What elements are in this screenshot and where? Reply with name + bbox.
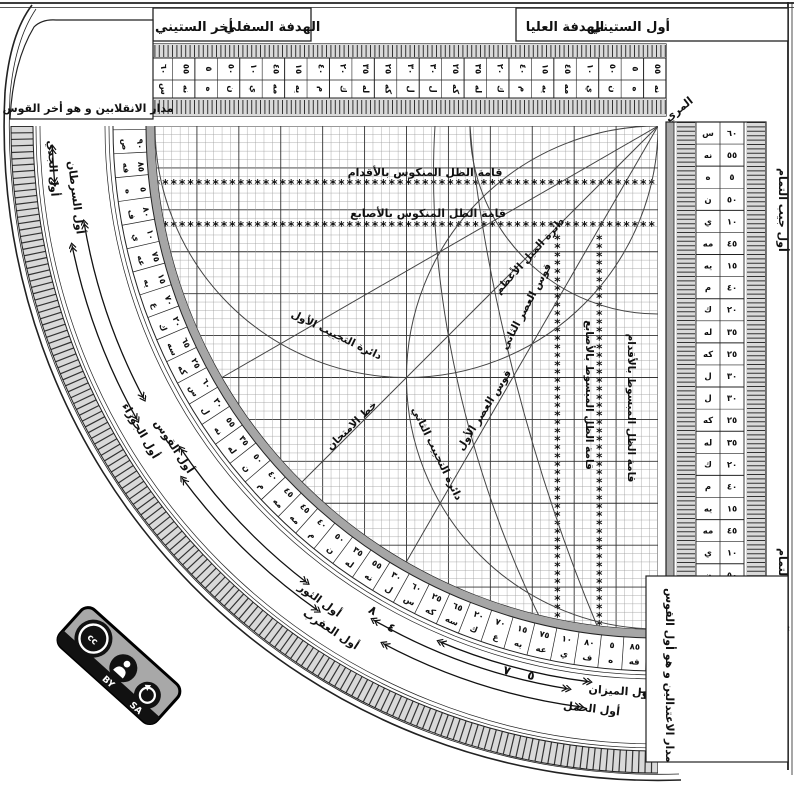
star-mark: * bbox=[573, 219, 580, 233]
cosine-cell-value: ٣٥ bbox=[727, 438, 737, 448]
degree-cell-value: ٣٥ bbox=[351, 545, 365, 559]
cosine-cell-letter: ه bbox=[705, 173, 710, 183]
degree-cell-value: ٢٥ bbox=[188, 357, 202, 371]
sixty-cell-value: ١٠ bbox=[584, 64, 594, 74]
star-mark: * bbox=[607, 219, 614, 233]
sixty-cell-letter: نه bbox=[181, 85, 191, 93]
star-mark: * bbox=[347, 177, 354, 191]
sixty-cell-letter: له bbox=[472, 85, 482, 93]
star-mark: * bbox=[464, 177, 471, 191]
degree-cell-value: ٥٥ bbox=[370, 558, 384, 572]
star-mark: * bbox=[623, 219, 630, 233]
cosine-cell-value: ١٥ bbox=[727, 505, 737, 515]
cosine-cell-value: ٥٥ bbox=[727, 151, 737, 161]
degree-cell-value: ٤٥ bbox=[281, 486, 295, 500]
degree-cell-value: ٧٥ bbox=[538, 629, 550, 641]
sixty-cell-letter: ي bbox=[248, 85, 258, 93]
degree-cell-letter: ي bbox=[559, 649, 569, 660]
cosine-cell-value: ٤٥ bbox=[727, 527, 737, 537]
star-mark: * bbox=[322, 177, 329, 191]
sixty-cell-value: ٥٠ bbox=[607, 64, 617, 74]
zodiac-label: أول الحمل bbox=[563, 698, 621, 718]
degree-cell-letter: ل bbox=[383, 584, 394, 596]
degree-cell-value: ٧٥ bbox=[149, 251, 161, 264]
cosine-cell-letter: ك bbox=[704, 306, 712, 316]
cosine-cell-letter: له bbox=[704, 438, 712, 448]
cosine-cell-letter: س bbox=[702, 129, 714, 139]
degree-cell-letter: ك bbox=[468, 624, 479, 636]
degree-cell-letter: ن bbox=[240, 463, 252, 475]
right-cosine-scale: س٦٠نه٥٥ه٥ن٥٠ي١٠مه٤٥يه١٥م٤٠ك٢٠له٣٥كه٢٥ل٣٠… bbox=[666, 122, 790, 630]
star-mark: * bbox=[288, 177, 295, 191]
sixty-cell-value: ٦٠ bbox=[158, 64, 168, 74]
muri-label: المري bbox=[662, 94, 695, 124]
sixty-cell-value: ٥٥ bbox=[181, 64, 191, 74]
cosine-cell-value: ٦٠ bbox=[727, 129, 737, 139]
cosine-cell-letter: كه bbox=[703, 416, 713, 426]
degree-cell-value: ٨٠ bbox=[583, 638, 595, 649]
degree-cell-letter: ص bbox=[119, 139, 129, 151]
degree-cell-value: ٨٥ bbox=[629, 642, 640, 652]
degree-cell-value: ٦٠ bbox=[199, 377, 213, 391]
star-mark: * bbox=[389, 219, 396, 233]
star-mark: * bbox=[590, 177, 597, 191]
sixty-cell-value: ٣٥ bbox=[360, 64, 370, 74]
star-mark: * bbox=[523, 177, 530, 191]
degree-cell-value: ٥ bbox=[609, 641, 615, 651]
label-digits-reversed: قامة الظل المنكوس بالأصابع bbox=[350, 206, 506, 220]
star-mark: * bbox=[280, 219, 287, 233]
quadrant-svg: ٩٠ص٨٥فه٥ه٨٠ف١٠ي٧٥عه١٥يه٧٠ع٢٠ك٦٥سه٢٥كه٦٠س… bbox=[0, 0, 794, 794]
degree-cell-value: ٧٠ bbox=[494, 617, 507, 630]
cosine-cell-letter: يه bbox=[704, 262, 712, 272]
star-mark: * bbox=[422, 219, 429, 233]
degree-cell-letter: ف bbox=[125, 209, 136, 220]
degree-cell-letter: عه bbox=[535, 644, 548, 656]
top-sixty-scale: ٦٠س٥٥نه٥ه٥٠ن١٠ي٤٥مه١٥يه٤٠م٢٠ك٣٥له٢٥كه٣٠ل… bbox=[150, 44, 666, 116]
cosine-cell-letter: ل bbox=[704, 372, 711, 382]
cosine-cell-value: ٥ bbox=[729, 173, 734, 183]
solstice-panel: مدار الانقلابين و هو أخر القوس bbox=[2, 20, 173, 119]
star-mark: * bbox=[271, 219, 278, 233]
degree-cell-value: ٩٠ bbox=[134, 139, 144, 150]
star-mark: * bbox=[506, 219, 513, 233]
sixty-cell-letter: ه bbox=[203, 86, 213, 91]
sixty-cell-letter: يه bbox=[540, 85, 550, 93]
degree-cell-value: ١٠ bbox=[144, 229, 156, 241]
degree-cell-value: ٢٠ bbox=[170, 315, 183, 328]
sixty-cell-value: ٢٠ bbox=[495, 64, 505, 74]
degree-cell-value: ٤٥ bbox=[297, 502, 311, 516]
star-mark: * bbox=[380, 177, 387, 191]
star-mark: * bbox=[179, 219, 186, 233]
star-mark: * bbox=[531, 177, 538, 191]
star-mark: * bbox=[196, 177, 203, 191]
degree-cell-letter: نه bbox=[211, 425, 224, 438]
cosine-cell-letter: نه bbox=[704, 151, 712, 161]
degree-cell-value: ٣٠ bbox=[389, 570, 403, 584]
star-mark: * bbox=[640, 219, 647, 233]
star-mark: * bbox=[296, 219, 303, 233]
cosine-cell-letter: م bbox=[705, 482, 711, 492]
star-mark: * bbox=[380, 219, 387, 233]
sixty-cell-value: ٤٠ bbox=[517, 64, 527, 74]
cosine-cell-value: ٥٠ bbox=[727, 195, 737, 205]
star-mark: * bbox=[581, 177, 588, 191]
degree-cell-letter: ه bbox=[122, 188, 133, 194]
sixty-cell-letter: م bbox=[315, 86, 325, 92]
degree-cell-value: ٤٠ bbox=[314, 517, 328, 531]
star-mark: * bbox=[263, 219, 270, 233]
sixty-cell-value: ١٠ bbox=[248, 64, 258, 74]
star-mark: * bbox=[405, 177, 412, 191]
star-mark: * bbox=[573, 177, 580, 191]
arc-number: ٧ bbox=[502, 663, 513, 679]
sixty-cell-value: ١٥ bbox=[540, 64, 550, 74]
star-mark: * bbox=[322, 219, 329, 233]
cosine-cell-value: ١٥ bbox=[727, 262, 737, 272]
star-mark: * bbox=[271, 177, 278, 191]
degree-cell-value: ٥٠ bbox=[250, 452, 264, 466]
label-digits-extended: قامة الظل المبسوط بالأصابع bbox=[583, 320, 596, 470]
cosine-cell-value: ٢٠ bbox=[727, 460, 737, 470]
cosine-cell-letter: يه bbox=[704, 505, 712, 515]
sixty-cell-letter: ل bbox=[427, 85, 437, 92]
star-mark: * bbox=[590, 219, 597, 233]
star-mark: * bbox=[296, 177, 303, 191]
sixty-cell-value: ٥ bbox=[203, 66, 213, 71]
star-mark: * bbox=[523, 219, 530, 233]
cosine-cell-value: ٣٠ bbox=[727, 394, 737, 404]
equinox-panel: مدار الاعتدالين و هو أول القوس bbox=[646, 576, 788, 762]
cosine-cell-letter: له bbox=[704, 328, 712, 338]
cosine-cell-letter: م bbox=[705, 284, 711, 294]
equinox-panel-label: مدار الاعتدالين و هو أول القوس bbox=[663, 588, 677, 762]
star-mark: * bbox=[456, 177, 463, 191]
star-mark: * bbox=[531, 219, 538, 233]
degree-cell-value: ٥٠ bbox=[332, 532, 346, 546]
cosine-cell-letter: ي bbox=[704, 217, 712, 227]
star-mark: * bbox=[405, 219, 412, 233]
sixty-cell-letter: ن bbox=[607, 85, 617, 92]
degree-cell-value: ٨٥ bbox=[135, 161, 146, 172]
degree-cell-letter: ن bbox=[324, 544, 336, 556]
sixty-cell-letter: مه bbox=[270, 84, 280, 94]
star-mark: * bbox=[615, 219, 622, 233]
degree-cell-letter: له bbox=[343, 558, 356, 571]
sixty-cell-letter: ه bbox=[629, 86, 639, 91]
cosine-cell-value: ٣٠ bbox=[727, 372, 737, 382]
star-mark: * bbox=[397, 177, 404, 191]
star-mark: * bbox=[288, 219, 295, 233]
star-mark: * bbox=[565, 219, 572, 233]
degree-cell-value: ١٠ bbox=[561, 634, 573, 646]
star-mark: * bbox=[640, 177, 647, 191]
star-mark: * bbox=[221, 177, 228, 191]
degree-cell-letter: مه bbox=[270, 496, 284, 510]
star-mark: * bbox=[246, 219, 253, 233]
star-mark: * bbox=[229, 177, 236, 191]
degree-cell-letter: كه bbox=[423, 605, 436, 618]
degree-cell-letter: ك bbox=[156, 322, 168, 333]
sixty-cell-value: ٢٠ bbox=[338, 64, 348, 74]
star-mark: * bbox=[607, 177, 614, 191]
cosine-cell-value: ٤٠ bbox=[727, 284, 737, 294]
star-mark: * bbox=[648, 219, 655, 233]
degree-cell-value: ٧٠ bbox=[162, 294, 175, 307]
cosine-cell-value: ١٠ bbox=[727, 549, 737, 559]
degree-cell-letter: ف bbox=[582, 653, 593, 664]
solstice-panel-label: مدار الانقلابين و هو أخر القوس bbox=[2, 101, 173, 115]
star-mark: * bbox=[196, 219, 203, 233]
star-mark: * bbox=[313, 177, 320, 191]
star-mark: * bbox=[171, 177, 178, 191]
star-mark: * bbox=[313, 219, 320, 233]
degree-cell-value: ٢٠ bbox=[472, 610, 485, 623]
degree-cell-letter: عه bbox=[134, 254, 146, 267]
sixty-cell-value: ٤٠ bbox=[315, 64, 325, 74]
degree-cell-letter: فه bbox=[629, 657, 640, 667]
star-mark: * bbox=[280, 177, 287, 191]
sixty-cell-letter: يه bbox=[293, 85, 303, 93]
star-mark: * bbox=[439, 177, 446, 191]
star-mark: * bbox=[598, 219, 605, 233]
star-mark: * bbox=[489, 177, 496, 191]
sixty-cell-letter: نه bbox=[652, 85, 662, 93]
star-mark: * bbox=[514, 219, 521, 233]
degree-cell-letter: نه bbox=[362, 571, 374, 584]
star-mark: * bbox=[254, 177, 261, 191]
degree-cell-value: ٥ bbox=[137, 186, 148, 192]
degree-cell-letter: ع bbox=[491, 632, 501, 644]
sixty-cell-letter: مه bbox=[562, 84, 572, 94]
star-mark: * bbox=[447, 177, 454, 191]
cosine-cell-value: ٢٥ bbox=[727, 416, 737, 426]
sixty-cell-value: ٣٠ bbox=[405, 64, 415, 74]
star-mark: * bbox=[363, 219, 370, 233]
degree-cell-value: ١٥ bbox=[516, 624, 529, 636]
cosine-cell-letter: ك bbox=[704, 460, 712, 470]
cosine-cell-value: ٣٥ bbox=[727, 328, 737, 338]
star-mark: * bbox=[254, 219, 261, 233]
label-feet-reversed: قامة الظل المنكوس بالأقدام bbox=[348, 165, 503, 179]
star-mark: * bbox=[372, 219, 379, 233]
star-mark: * bbox=[414, 177, 421, 191]
degree-cell-letter: يه bbox=[513, 638, 524, 650]
sixty-cell-value: ٣٠ bbox=[427, 64, 437, 74]
star-mark: * bbox=[615, 177, 622, 191]
degree-cell-value: ٥٥ bbox=[223, 416, 237, 430]
star-mark: * bbox=[422, 177, 429, 191]
star-mark: * bbox=[187, 177, 194, 191]
star-mark: * bbox=[632, 177, 639, 191]
sight-blocks: أخر الستيني الهدفة السفلي الهدفة العليا … bbox=[153, 8, 788, 41]
degree-cell-value: ٤٠ bbox=[265, 469, 279, 483]
degree-cell-value: ٦٥ bbox=[451, 601, 464, 614]
star-mark: * bbox=[338, 177, 345, 191]
cosine-cell-value: ٤٠ bbox=[727, 482, 737, 492]
star-mark: * bbox=[213, 177, 220, 191]
sixty-cell-value: ٤٥ bbox=[270, 64, 280, 74]
star-mark: * bbox=[204, 177, 211, 191]
sixty-cell-letter: ل bbox=[405, 85, 415, 92]
cosine-cell-letter: مه bbox=[703, 527, 713, 537]
cosine-cell-letter: مه bbox=[703, 239, 713, 249]
cosine-cell-letter: كه bbox=[703, 350, 713, 360]
cosine-cell-letter: ل bbox=[704, 394, 711, 404]
sixty-cell-letter: ك bbox=[495, 85, 505, 93]
degree-cell-value: ٢٥ bbox=[430, 592, 444, 605]
sixty-cell-value: ٣٥ bbox=[472, 64, 482, 74]
star-mark: * bbox=[514, 177, 521, 191]
cosine-cell-value: ٢٠ bbox=[727, 306, 737, 316]
star-mark: * bbox=[238, 219, 245, 233]
star-mark: * bbox=[330, 219, 337, 233]
sixty-cell-value: ١٥ bbox=[293, 64, 303, 74]
zodiac-arrow bbox=[84, 222, 144, 399]
sixty-cell-letter: ك bbox=[338, 85, 348, 93]
star-mark: * bbox=[263, 177, 270, 191]
sixty-start-label: أول الستيني bbox=[590, 18, 670, 35]
degree-cell-value: ٣٥ bbox=[236, 434, 250, 448]
degree-cell-value: ٦٠ bbox=[409, 581, 423, 595]
sixty-cell-value: ٥ bbox=[629, 66, 639, 71]
star-mark: * bbox=[581, 219, 588, 233]
degree-cell-value: ٣٠ bbox=[211, 396, 225, 410]
sixty-cell-letter: ي bbox=[584, 85, 594, 93]
star-mark: * bbox=[238, 177, 245, 191]
degree-cell-letter: م bbox=[256, 481, 268, 492]
degree-cell-letter: س bbox=[402, 594, 417, 608]
degree-cell-value: ١٥ bbox=[155, 273, 168, 286]
sixty-end-label: أخر الستيني bbox=[155, 18, 233, 35]
sixty-cell-letter: كه bbox=[383, 84, 393, 94]
cc-by-sa-badge: cc BY SA bbox=[53, 604, 184, 729]
degree-cell-letter: له bbox=[225, 444, 238, 457]
star-mark: * bbox=[363, 177, 370, 191]
arc-number: ٨ bbox=[366, 602, 380, 618]
cosine-cell-letter: ي bbox=[704, 549, 712, 559]
star-mark: * bbox=[439, 219, 446, 233]
cosine-cell-value: ٢٥ bbox=[727, 350, 737, 360]
degree-cell-letter: ل bbox=[199, 406, 211, 418]
star-mark: * bbox=[431, 219, 438, 233]
lower-sight-label: الهدفة السفلي bbox=[224, 20, 321, 35]
star-mark: * bbox=[372, 177, 379, 191]
sixty-cell-letter: له bbox=[360, 85, 370, 93]
degree-cell-letter: س bbox=[186, 384, 201, 399]
label-feet-extended: قامة الظل المبسوط بالأقدام bbox=[625, 334, 638, 483]
star-mark: * bbox=[355, 219, 362, 233]
degree-cell-letter: ه bbox=[608, 656, 614, 666]
sixty-cell-letter: ن bbox=[226, 85, 236, 92]
cosine-cell-value: ١٠ bbox=[727, 217, 737, 227]
cosine-cell-value: ٤٥ bbox=[727, 239, 737, 249]
star-mark: * bbox=[179, 177, 186, 191]
sixty-cell-value: ٥٥ bbox=[652, 64, 662, 74]
sixty-cell-letter: م bbox=[517, 86, 527, 92]
degree-cell-letter: سه bbox=[443, 614, 459, 628]
star-mark: * bbox=[305, 219, 312, 233]
star-mark: * bbox=[414, 219, 421, 233]
cosine-cell-letter: ن bbox=[704, 195, 711, 205]
degree-cell-letter: ي bbox=[130, 233, 141, 243]
star-mark: * bbox=[539, 177, 546, 191]
sixty-cell-letter: كه bbox=[450, 84, 460, 94]
star-mark: * bbox=[347, 219, 354, 233]
arc-number: ٤ bbox=[385, 620, 398, 636]
star-mark: * bbox=[506, 177, 513, 191]
degree-cell-value: ٦٥ bbox=[179, 336, 192, 350]
star-mark: * bbox=[330, 177, 337, 191]
star-mark: * bbox=[481, 177, 488, 191]
star-mark: * bbox=[221, 219, 228, 233]
star-mark: * bbox=[246, 177, 253, 191]
sixty-cell-value: ٤٥ bbox=[562, 64, 572, 74]
star-mark: * bbox=[389, 177, 396, 191]
star-mark: * bbox=[229, 219, 236, 233]
degree-cell-letter: سه bbox=[164, 341, 179, 357]
degree-cell-letter: كه bbox=[175, 364, 189, 378]
sixty-cell-value: ٥٠ bbox=[226, 64, 236, 74]
degree-cell-value: ٨٠ bbox=[140, 206, 152, 218]
degree-cell-letter: يه bbox=[141, 278, 153, 289]
sixty-cell-value: ٢٥ bbox=[383, 64, 393, 74]
sine-quadrant-diagram: ٩٠ص٨٥فه٥ه٨٠ف١٠ي٧٥عه١٥يه٧٠ع٢٠ك٦٥سه٢٥كه٦٠س… bbox=[0, 0, 794, 794]
sixty-cell-value: ٢٥ bbox=[450, 64, 460, 74]
cosine-start-label: أول جيب التمام bbox=[776, 168, 790, 252]
degree-cell-letter: مه bbox=[287, 513, 301, 527]
star-mark: * bbox=[204, 219, 211, 233]
star-mark: * bbox=[213, 219, 220, 233]
star-mark: * bbox=[355, 177, 362, 191]
degree-cell-letter: فه bbox=[120, 162, 131, 173]
star-mark: * bbox=[338, 219, 345, 233]
star-mark: * bbox=[464, 219, 471, 233]
degree-cell-letter: م bbox=[306, 530, 317, 542]
degree-cell-letter: ع bbox=[148, 301, 160, 311]
star-mark: * bbox=[187, 219, 194, 233]
star-mark: * bbox=[397, 219, 404, 233]
star-mark: * bbox=[305, 177, 312, 191]
sixty-cell-letter: س bbox=[158, 83, 168, 95]
